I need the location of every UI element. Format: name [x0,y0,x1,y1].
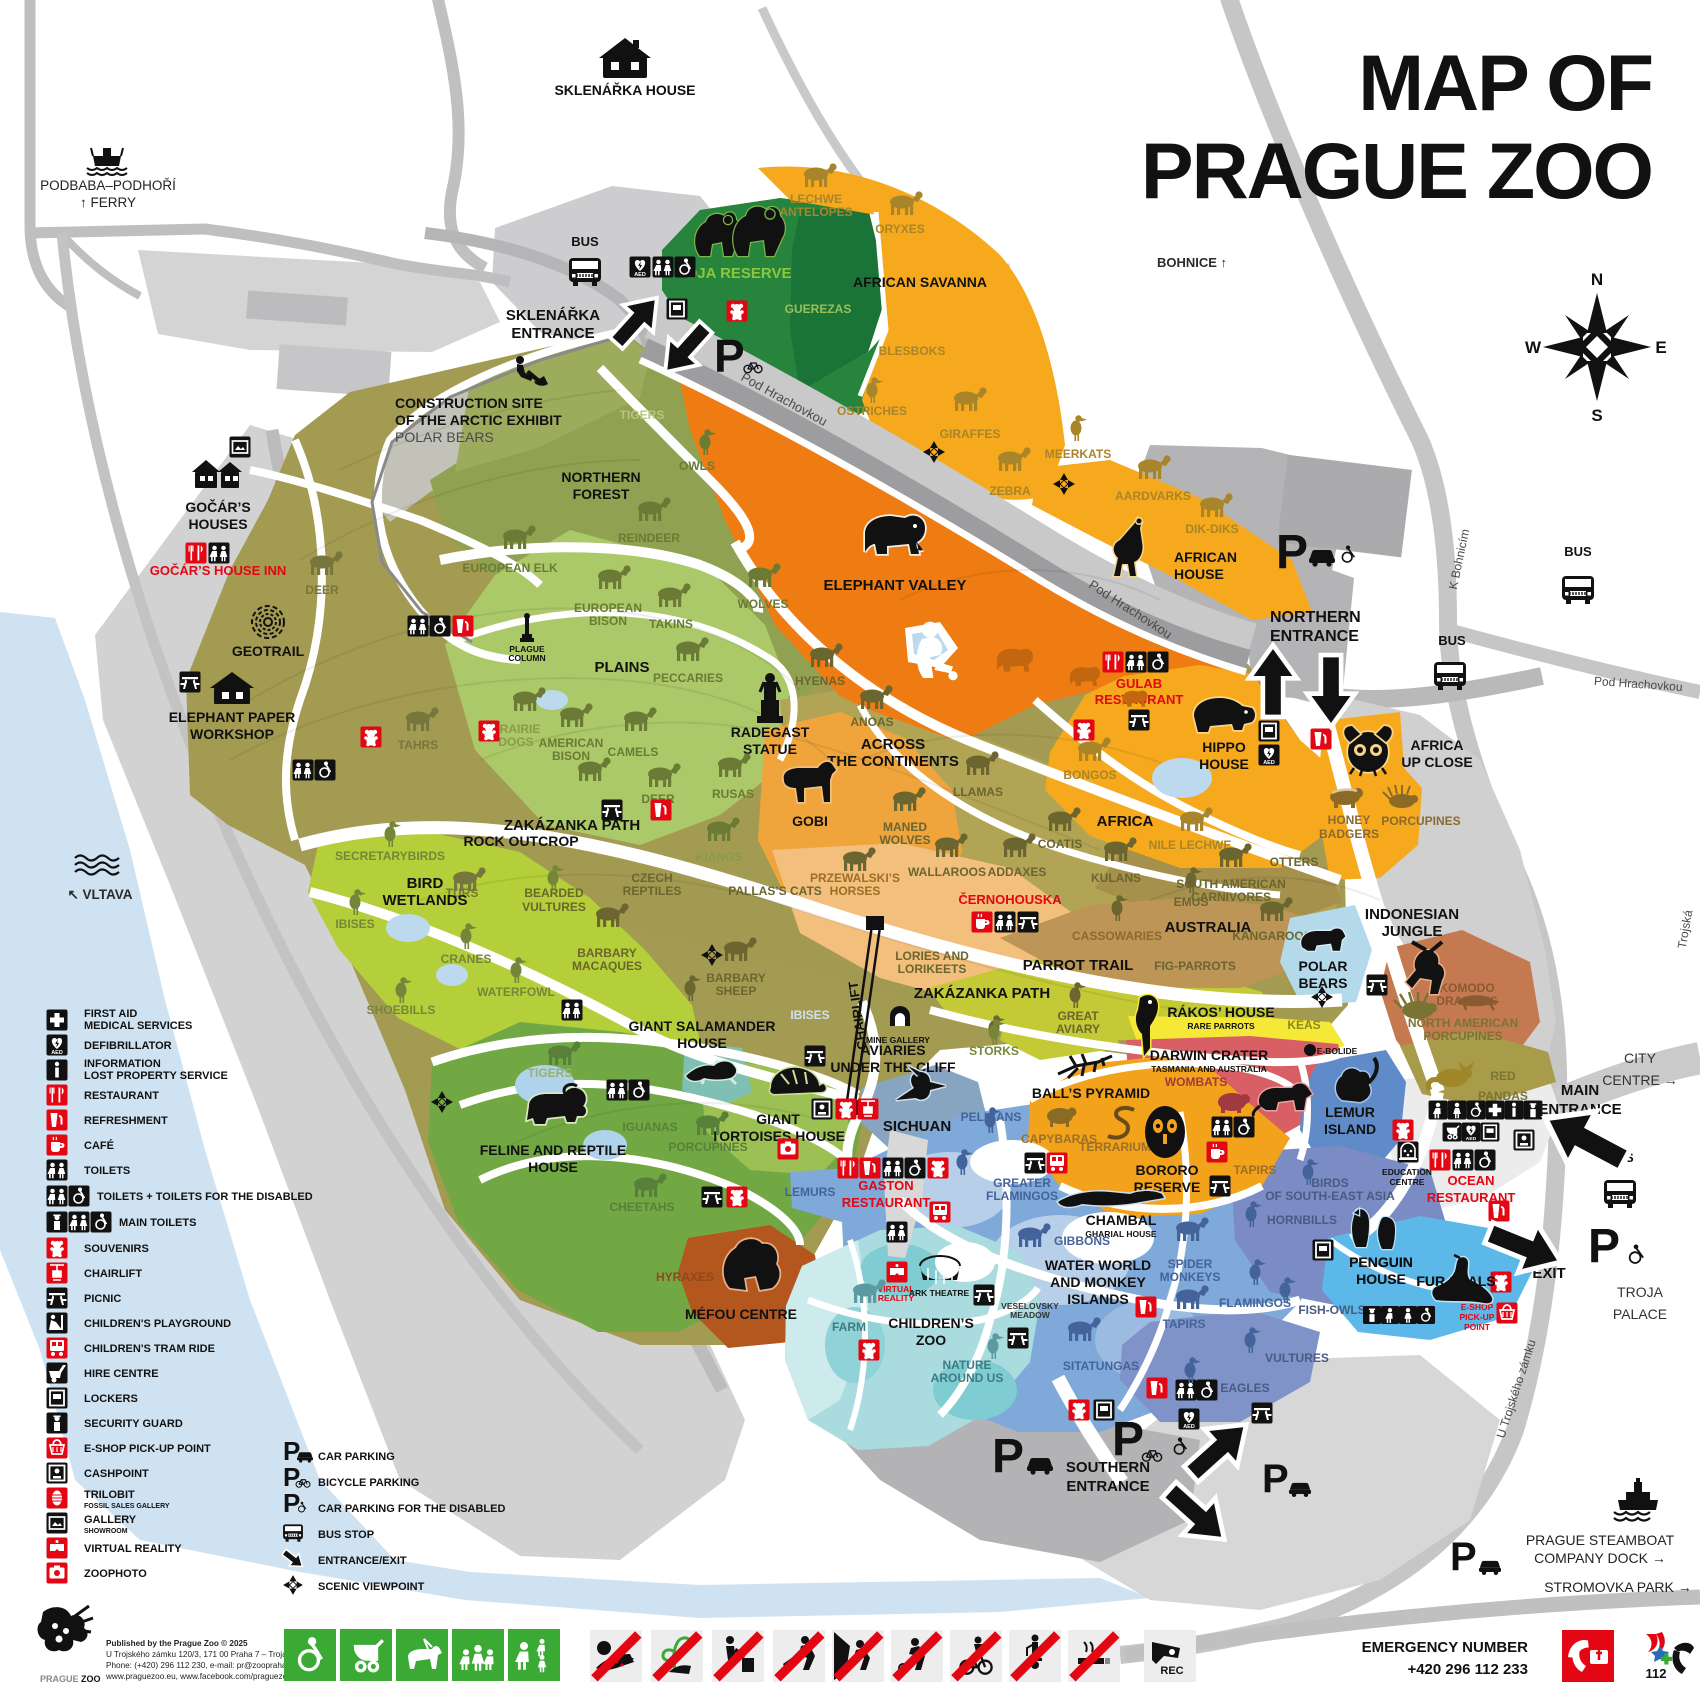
svg-text:HOUSE: HOUSE [677,1035,727,1051]
svg-text:ARK THEATRE: ARK THEATRE [909,1288,970,1298]
svg-text:EDUCATION: EDUCATION [1382,1167,1432,1177]
svg-text:LORIKEETS: LORIKEETS [898,962,967,976]
svg-text:TAPIRS: TAPIRS [1233,1163,1276,1177]
svg-text:MEERKATS: MEERKATS [1045,447,1111,461]
svg-text:PRAGUE ZOO: PRAGUE ZOO [40,1674,101,1684]
svg-text:HOUSE: HOUSE [1174,566,1224,582]
svg-text:TAKINS: TAKINS [649,617,693,631]
svg-text:ZAKÁZANKA PATH: ZAKÁZANKA PATH [914,985,1050,1002]
svg-text:GOČÁR’S HOUSE INN: GOČÁR’S HOUSE INN [150,563,287,578]
svg-text:GREAT: GREAT [1057,1009,1099,1023]
svg-text:↖ VLTAVA: ↖ VLTAVA [67,887,132,902]
svg-text:BARBARY: BARBARY [577,946,637,960]
svg-text:CONSTRUCTION SITE: CONSTRUCTION SITE [395,395,543,411]
svg-text:OF SOUTH-EAST ASIA: OF SOUTH-EAST ASIA [1265,1189,1395,1203]
svg-text:TOILETS + TOILETS FOR THE DISA: TOILETS + TOILETS FOR THE DISABLED [97,1191,313,1203]
svg-text:WALLAROOS: WALLAROOS [908,865,986,879]
svg-text:CAR PARKING: CAR PARKING [318,1451,395,1463]
svg-text:112: 112 [1646,1666,1667,1681]
svg-text:GUEREZAS: GUEREZAS [785,302,852,316]
svg-text:THE CONTINENTS: THE CONTINENTS [827,753,959,770]
svg-text:PRAGUE STEAMBOAT: PRAGUE STEAMBOAT [1526,1532,1675,1548]
svg-text:CRANES: CRANES [441,952,492,966]
svg-text:ZOO: ZOO [916,1332,946,1348]
svg-text:+420 296 112 233: +420 296 112 233 [1407,1661,1528,1678]
svg-text:BUS STOP: BUS STOP [318,1529,374,1541]
svg-text:E-BOLIDE: E-BOLIDE [1317,1046,1358,1056]
svg-text:PRAGUE ZOO: PRAGUE ZOO [1141,126,1652,215]
svg-text:MACAQUES: MACAQUES [572,959,642,973]
svg-text:POINT: POINT [1464,1322,1491,1332]
svg-text:POLAR BEARS: POLAR BEARS [395,429,494,445]
svg-text:STATUE: STATUE [743,741,797,757]
svg-text:OCEAN: OCEAN [1448,1173,1495,1188]
svg-text:PORCUPINES: PORCUPINES [668,1140,747,1154]
svg-text:FIG-PARROTS: FIG-PARROTS [1154,959,1236,973]
svg-text:ZOOPHOTO: ZOOPHOTO [84,1568,147,1580]
svg-text:OSTRICHES: OSTRICHES [837,404,907,418]
svg-text:AROUND US: AROUND US [931,1371,1004,1385]
svg-text:FISH-OWLS: FISH-OWLS [1298,1303,1365,1317]
svg-text:REINDEER: REINDEER [618,531,680,545]
svg-text:VIRTUAL REALITY: VIRTUAL REALITY [84,1543,182,1555]
svg-text:MÉFOU CENTRE: MÉFOU CENTRE [685,1306,797,1322]
svg-text:PODBABA–PODHOŘÍ: PODBABA–PODHOŘÍ [40,178,176,193]
svg-text:PARROT TRAIL: PARROT TRAIL [1023,957,1134,974]
svg-text:DIK-DIKS: DIK-DIKS [1185,522,1238,536]
svg-text:PORCUPINES: PORCUPINES [1423,1029,1502,1043]
svg-text:GIRAFFES: GIRAFFES [940,427,1001,441]
svg-text:MONKEYS: MONKEYS [1160,1270,1221,1284]
svg-text:MAIN: MAIN [1561,1082,1599,1099]
svg-text:REPTILES: REPTILES [623,884,682,898]
svg-text:UP CLOSE: UP CLOSE [1401,754,1472,770]
svg-text:ACROSS: ACROSS [861,736,925,753]
svg-text:U Trojského zámku 120/3, 171 0: U Trojského zámku 120/3, 171 00 Praha 7 … [106,1650,287,1659]
svg-text:↑ FERRY: ↑ FERRY [80,195,136,210]
svg-text:P: P [992,1430,1024,1483]
svg-text:BADGERS: BADGERS [1319,827,1379,841]
svg-text:MEADOW: MEADOW [1010,1310,1051,1320]
svg-text:AND MONKEY: AND MONKEY [1050,1274,1146,1290]
svg-text:WATER WORLD: WATER WORLD [1045,1257,1151,1273]
svg-text:POLAR: POLAR [1299,958,1348,974]
svg-text:KIANGS: KIANGS [696,850,743,864]
svg-text:BORORO: BORORO [1136,1162,1199,1178]
svg-text:RED: RED [1490,1069,1516,1083]
svg-text:GULAB: GULAB [1116,676,1162,691]
svg-text:SECURITY GUARD: SECURITY GUARD [84,1418,183,1430]
svg-text:TAHRS: TAHRS [398,738,438,752]
svg-text:BOHNICE ↑: BOHNICE ↑ [1157,255,1227,270]
svg-text:SKLENÁŘKA: SKLENÁŘKA [506,306,600,324]
svg-text:ISLANDS: ISLANDS [1067,1291,1128,1307]
svg-text:SPIDER: SPIDER [1168,1257,1213,1271]
svg-text:MANED: MANED [883,820,927,834]
svg-text:ELEPHANT VALLEY: ELEPHANT VALLEY [823,577,966,594]
svg-text:S: S [1591,406,1602,425]
svg-text:HYENAS: HYENAS [795,674,845,688]
svg-text:BICYCLE PARKING: BICYCLE PARKING [318,1477,419,1489]
svg-text:CHAIRLIFT: CHAIRLIFT [84,1268,142,1280]
svg-text:BISON: BISON [589,614,627,628]
svg-text:HIPPO: HIPPO [1202,739,1246,755]
svg-text:SOUVENIRS: SOUVENIRS [84,1243,149,1255]
svg-text:FLAMINGOS: FLAMINGOS [1219,1296,1291,1310]
svg-text:SITATUNGAS: SITATUNGAS [1063,1359,1139,1373]
svg-text:TAPIRS: TAPIRS [1162,1317,1205,1331]
svg-text:PECCARIES: PECCARIES [653,671,723,685]
svg-text:W: W [1525,338,1542,357]
svg-text:GASTON: GASTON [858,1178,913,1193]
svg-text:LORIES AND: LORIES AND [895,949,969,963]
svg-text:Phone: (+420) 296 112 230, e-m: Phone: (+420) 296 112 230, e-mail: pr@zo… [106,1661,297,1670]
svg-text:CHILDREN'S PLAYGROUND: CHILDREN'S PLAYGROUND [84,1318,231,1330]
svg-text:HONEY: HONEY [1328,813,1371,827]
svg-text:PENGUIN: PENGUIN [1349,1254,1413,1270]
svg-text:GIANT: GIANT [756,1111,800,1127]
svg-text:STROMOVKA PARK →: STROMOVKA PARK → [1544,1579,1692,1595]
svg-text:CHILDREN'S TRAM RIDE: CHILDREN'S TRAM RIDE [84,1343,215,1355]
svg-text:SHOWROOM: SHOWROOM [84,1528,128,1535]
svg-text:GIBBONS: GIBBONS [1054,1234,1110,1248]
svg-text:CHILDREN’S: CHILDREN’S [888,1315,974,1331]
svg-text:FOSSIL SALES GALLERY: FOSSIL SALES GALLERY [84,1503,170,1510]
svg-text:www.praguezoo.eu, www.facebook: www.praguezoo.eu, www.facebook.com/pragu… [105,1672,292,1681]
svg-text:PICK-UP: PICK-UP [1460,1312,1495,1322]
svg-text:REC: REC [1160,1665,1183,1677]
svg-text:MAP OF: MAP OF [1358,38,1652,127]
svg-text:ZEBRA: ZEBRA [989,484,1031,498]
svg-text:E-SHOP PICK-UP POINT: E-SHOP PICK-UP POINT [84,1443,211,1455]
svg-text:HOUSE: HOUSE [528,1159,578,1175]
svg-text:SCENIC VIEWPOINT: SCENIC VIEWPOINT [318,1581,425,1593]
svg-text:PICNIC: PICNIC [84,1293,121,1305]
svg-text:RESTAURANT: RESTAURANT [842,1195,931,1210]
svg-text:GOČÁR’S: GOČÁR’S [185,498,250,515]
svg-text:ORYXES: ORYXES [875,222,925,236]
svg-text:PRZEWALSKI’S: PRZEWALSKI’S [810,871,900,885]
svg-text:Published by the Prague Zoo ©: Published by the Prague Zoo © 2025 [106,1639,248,1648]
svg-text:P: P [1276,526,1308,579]
svg-text:BISON: BISON [552,749,590,763]
svg-text:UNDER THE CLIFF: UNDER THE CLIFF [830,1059,956,1075]
svg-text:RESTAURANT: RESTAURANT [84,1090,159,1102]
svg-text:MEDICAL SERVICES: MEDICAL SERVICES [84,1020,192,1032]
svg-text:RARE PARROTS: RARE PARROTS [1187,1021,1255,1031]
svg-text:OF THE ARCTIC EXHIBIT: OF THE ARCTIC EXHIBIT [395,412,562,428]
svg-text:GOBI: GOBI [792,813,828,829]
svg-text:ENTRANCE: ENTRANCE [1270,628,1359,645]
svg-text:AFRICAN SAVANNA: AFRICAN SAVANNA [853,274,987,290]
svg-text:ANTELOPES: ANTELOPES [779,205,852,219]
svg-text:PALLAS’S CATS: PALLAS’S CATS [728,884,822,898]
svg-text:NORTHERN: NORTHERN [561,469,640,485]
svg-text:GEOTRAIL: GEOTRAIL [232,643,305,659]
svg-text:VULTURES: VULTURES [522,900,586,914]
svg-text:WOLVES: WOLVES [879,833,930,847]
svg-text:AFRICA: AFRICA [1411,737,1464,753]
svg-text:WATERFOWL: WATERFOWL [477,985,555,999]
svg-text:CHAMBAL: CHAMBAL [1086,1212,1157,1228]
svg-text:WETLANDS: WETLANDS [383,892,468,909]
svg-text:DARWIN CRATER: DARWIN CRATER [1150,1047,1268,1063]
svg-text:AVIARY: AVIARY [1056,1022,1100,1036]
svg-text:HORNBILLS: HORNBILLS [1267,1213,1337,1227]
svg-text:BUS: BUS [1438,633,1466,648]
svg-text:CITY: CITY [1624,1050,1657,1066]
svg-text:KULANS: KULANS [1091,871,1141,885]
svg-text:PORCUPINES: PORCUPINES [1381,814,1460,828]
svg-text:CENTRE: CENTRE [1390,1177,1425,1187]
svg-text:PLAINS: PLAINS [594,659,649,676]
svg-text:OWLS: OWLS [679,459,715,473]
svg-text:P: P [1450,1535,1477,1579]
svg-text:EUROPEAN ELK: EUROPEAN ELK [462,561,558,575]
svg-text:TIGERS: TIGERS [620,408,665,422]
svg-text:ENTRANCE: ENTRANCE [511,325,594,342]
svg-text:CASHPOINT: CASHPOINT [84,1468,149,1480]
svg-text:SHOEBILLS: SHOEBILLS [367,1003,436,1017]
svg-text:DJA RESERVE: DJA RESERVE [686,265,791,282]
svg-text:TROJA: TROJA [1617,1284,1664,1300]
svg-text:FIRST AID: FIRST AID [84,1008,137,1020]
svg-text:COMPANY DOCK →: COMPANY DOCK → [1534,1550,1666,1566]
svg-text:BALL’S PYRAMID: BALL’S PYRAMID [1032,1085,1150,1101]
svg-text:P: P [1112,1413,1144,1466]
svg-text:BIRDS: BIRDS [1311,1176,1348,1190]
svg-text:ANOAS: ANOAS [850,715,893,729]
svg-text:AFRICA: AFRICA [1097,813,1154,830]
svg-text:BONGOS: BONGOS [1063,768,1116,782]
svg-text:N: N [1591,270,1603,289]
svg-text:P: P [283,1488,300,1518]
svg-text:P: P [1588,1220,1620,1273]
svg-text:JUNGLE: JUNGLE [1382,923,1443,940]
svg-text:DOGS: DOGS [498,735,533,749]
svg-text:IBISES: IBISES [790,1008,829,1022]
svg-text:HIRE CENTRE: HIRE CENTRE [84,1368,159,1380]
svg-text:INFORMATION: INFORMATION [84,1058,161,1070]
svg-text:LECHWE: LECHWE [790,192,842,206]
svg-text:CAR PARKING FOR THE DISABLED: CAR PARKING FOR THE DISABLED [318,1503,505,1515]
svg-text:CAMELS: CAMELS [608,745,659,759]
svg-text:KOMODO: KOMODO [1439,981,1494,995]
svg-text:IGUANAS: IGUANAS [622,1120,677,1134]
svg-text:LEMURS: LEMURS [785,1185,836,1199]
svg-text:HOUSE: HOUSE [1199,756,1249,772]
svg-text:FELINE AND REPTILE: FELINE AND REPTILE [480,1142,627,1158]
svg-text:DEER: DEER [305,583,339,597]
svg-text:FUR SEALS: FUR SEALS [1416,1273,1495,1289]
svg-text:BARBARY: BARBARY [706,971,766,985]
svg-text:TASMANIA AND AUSTRALIA: TASMANIA AND AUSTRALIA [1151,1064,1267,1074]
svg-text:TERRARIUM: TERRARIUM [1079,1140,1151,1154]
svg-text:WORKSHOP: WORKSHOP [190,726,274,742]
svg-text:RADEGAST: RADEGAST [731,724,810,740]
svg-text:GIANT SALAMANDER: GIANT SALAMANDER [629,1018,776,1034]
svg-text:MINE GALLERY: MINE GALLERY [866,1035,930,1045]
svg-text:HOUSES: HOUSES [188,516,247,532]
svg-text:LLAMAS: LLAMAS [953,785,1003,799]
svg-text:CHEETAHS: CHEETAHS [609,1200,674,1214]
svg-text:SECRETARYBIRDS: SECRETARYBIRDS [335,849,445,863]
svg-text:MAIN TOILETS: MAIN TOILETS [119,1217,196,1229]
svg-text:FOREST: FOREST [573,486,630,502]
svg-text:RÁKOS’ HOUSE: RÁKOS’ HOUSE [1167,1004,1274,1020]
svg-text:HOUSE: HOUSE [1356,1271,1406,1287]
svg-text:E: E [1655,338,1666,357]
svg-text:LOCKERS: LOCKERS [84,1393,138,1405]
svg-text:CAFÉ: CAFÉ [84,1139,114,1152]
svg-text:HORSES: HORSES [830,884,881,898]
svg-text:BIRD: BIRD [407,875,444,892]
svg-text:TOILETS: TOILETS [84,1165,130,1177]
svg-text:TRILOBIT: TRILOBIT [84,1489,135,1501]
svg-text:P: P [1262,1457,1289,1501]
svg-text:CZECH: CZECH [631,871,672,885]
svg-text:IBISES: IBISES [335,917,374,931]
svg-text:GALLERY: GALLERY [84,1514,137,1526]
svg-text:AMERICAN: AMERICAN [539,736,604,750]
svg-text:ELEPHANT PAPER: ELEPHANT PAPER [169,709,296,725]
svg-text:BUS: BUS [1564,544,1592,559]
svg-text:ENTRANCE: ENTRANCE [1066,1478,1149,1495]
svg-text:AARDVARKS: AARDVARKS [1115,489,1191,503]
svg-text:LEMUR: LEMUR [1325,1104,1375,1120]
svg-text:WOLVES: WOLVES [737,597,788,611]
svg-text:ROCK OUTCROP: ROCK OUTCROP [463,833,578,849]
svg-text:PALACE: PALACE [1613,1306,1667,1322]
svg-text:HYRAXES: HYRAXES [656,1270,714,1284]
svg-text:OTTERS: OTTERS [1270,855,1319,869]
svg-text:STORKS: STORKS [969,1044,1019,1058]
svg-text:AFRICAN: AFRICAN [1174,549,1237,565]
svg-text:NATURE: NATURE [942,1358,991,1372]
svg-text:CENTRE →: CENTRE → [1602,1072,1677,1088]
svg-text:KANGAROOS: KANGAROOS [1232,929,1311,943]
svg-text:BLESBOKS: BLESBOKS [879,344,946,358]
svg-text:EMERGENCY NUMBER: EMERGENCY NUMBER [1362,1639,1529,1656]
svg-text:ADDAXES: ADDAXES [988,865,1047,879]
svg-text:FLAMINGOS: FLAMINGOS [986,1189,1058,1203]
svg-text:COLUMN: COLUMN [508,653,545,663]
svg-text:P: P [714,330,745,382]
svg-text:BEARDED: BEARDED [524,886,584,900]
svg-text:REFRESHMENT: REFRESHMENT [84,1115,168,1127]
svg-text:CASSOWARIES: CASSOWARIES [1072,929,1162,943]
svg-text:ENTRANCE/EXIT: ENTRANCE/EXIT [318,1555,407,1567]
svg-text:KEAS: KEAS [1287,1018,1320,1032]
svg-text:SICHUAN: SICHUAN [883,1118,951,1135]
svg-text:VULTURES: VULTURES [1265,1351,1329,1365]
svg-text:NORTHERN: NORTHERN [1270,609,1361,626]
svg-text:REALITY: REALITY [878,1293,915,1303]
svg-text:GREATER: GREATER [993,1176,1051,1190]
svg-text:DEFIBRILLATOR: DEFIBRILLATOR [84,1040,172,1052]
svg-text:LOST PROPERTY SERVICE: LOST PROPERTY SERVICE [84,1070,228,1082]
svg-text:TIGERS: TIGERS [528,1066,573,1080]
svg-text:FARM: FARM [832,1320,866,1334]
svg-text:RUSAS: RUSAS [712,787,754,801]
svg-text:CARNIVORES: CARNIVORES [1191,890,1271,904]
svg-text:SKLENÁŘKA HOUSE: SKLENÁŘKA HOUSE [554,81,695,98]
svg-text:BUS: BUS [571,234,599,249]
svg-text:SHEEP: SHEEP [716,984,757,998]
svg-text:NILE LECHWE: NILE LECHWE [1149,838,1232,852]
svg-text:ISLAND: ISLAND [1324,1121,1376,1137]
svg-text:EUROPEAN: EUROPEAN [574,601,642,615]
svg-text:WOMBATS: WOMBATS [1165,1075,1227,1089]
svg-text:EAGLES: EAGLES [1220,1381,1269,1395]
svg-text:ČERNOHOUSKA: ČERNOHOUSKA [958,892,1062,907]
svg-text:COATIS: COATIS [1038,837,1082,851]
svg-text:INDONESIAN: INDONESIAN [1365,906,1459,923]
